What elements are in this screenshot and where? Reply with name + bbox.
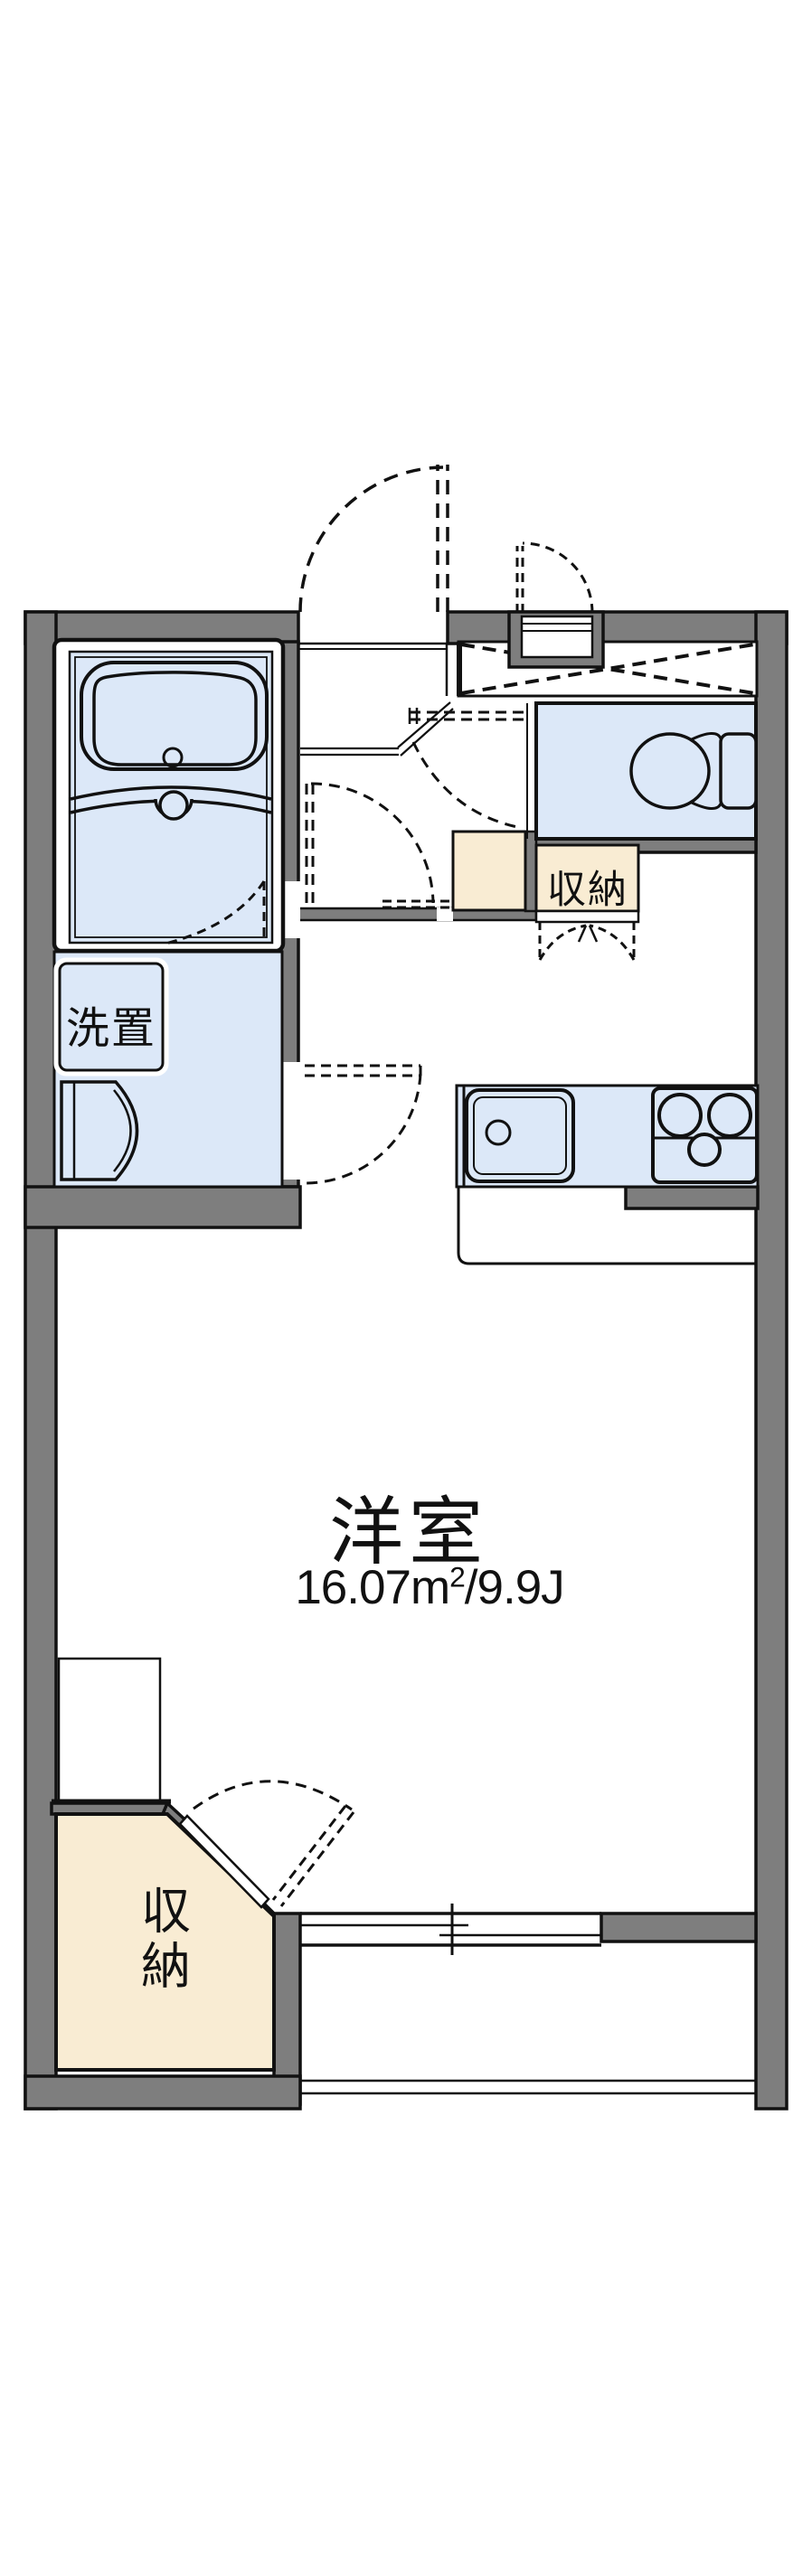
meter-door-arc [523, 543, 592, 613]
kitchen [457, 1086, 758, 1264]
meter-box-niche [522, 616, 592, 657]
stove-burner-small [689, 1134, 720, 1165]
toilet-bowl [631, 734, 709, 808]
bath-faucet [160, 792, 187, 819]
hall-door-arc [311, 784, 433, 903]
wall-window-right [601, 1913, 756, 1941]
storage-door-arrow-2 [590, 926, 597, 942]
closet-upper-niche [59, 1659, 160, 1800]
washer-label: 洗置 [66, 992, 156, 1056]
hall-door-jamb [437, 907, 453, 921]
toilet-room [527, 703, 756, 839]
floor-plan-canvas [0, 0, 812, 2576]
hall-partition-diag-1 [398, 702, 450, 747]
meter-box [509, 612, 603, 667]
storage-bottom-label: 収納 [137, 1885, 186, 1995]
room-area-prefix: 16.07m [295, 1561, 449, 1614]
hall-side-cabinet [453, 832, 525, 910]
door-openings [279, 881, 453, 1180]
wall-bottom-left [25, 2076, 300, 2109]
storage-door-arc-right [590, 926, 634, 960]
storage-door-arc-left [540, 926, 586, 960]
hall-partition-diag-2 [401, 709, 453, 756]
toilet-door-arc [413, 742, 522, 828]
room-area-suffix: /9.9J [465, 1561, 564, 1614]
wall-kitchen-stub [626, 1187, 758, 1208]
shoe-storage-box [458, 642, 757, 696]
wall-left [25, 612, 56, 2109]
closet-door-open-leaf-2 [273, 1806, 345, 1900]
entrance-door-arc [300, 467, 443, 612]
closet-door-arc [194, 1782, 352, 1810]
toilet-tank [721, 734, 756, 808]
wall-right [756, 612, 787, 2109]
washroom [54, 952, 282, 1187]
room-area-label: 16.07m2/9.9J [295, 1560, 563, 1615]
room-area-superscript: 2 [449, 1560, 465, 1593]
storage-door-arrow-1 [579, 926, 586, 942]
vanity-unit [61, 1082, 137, 1180]
wall-top-right [448, 612, 787, 644]
wall-storage-strip [525, 832, 536, 911]
bathroom [54, 640, 283, 951]
closet-door-open-leaf-1 [281, 1812, 354, 1906]
storage-top-label: 収納 [547, 859, 628, 915]
floor-plan-page: 洋室 16.07m2/9.9J 洗置 収納 収納 [0, 0, 812, 2576]
wall-washroom-bottom [25, 1187, 300, 1227]
washroom-door-arc [307, 1074, 420, 1183]
